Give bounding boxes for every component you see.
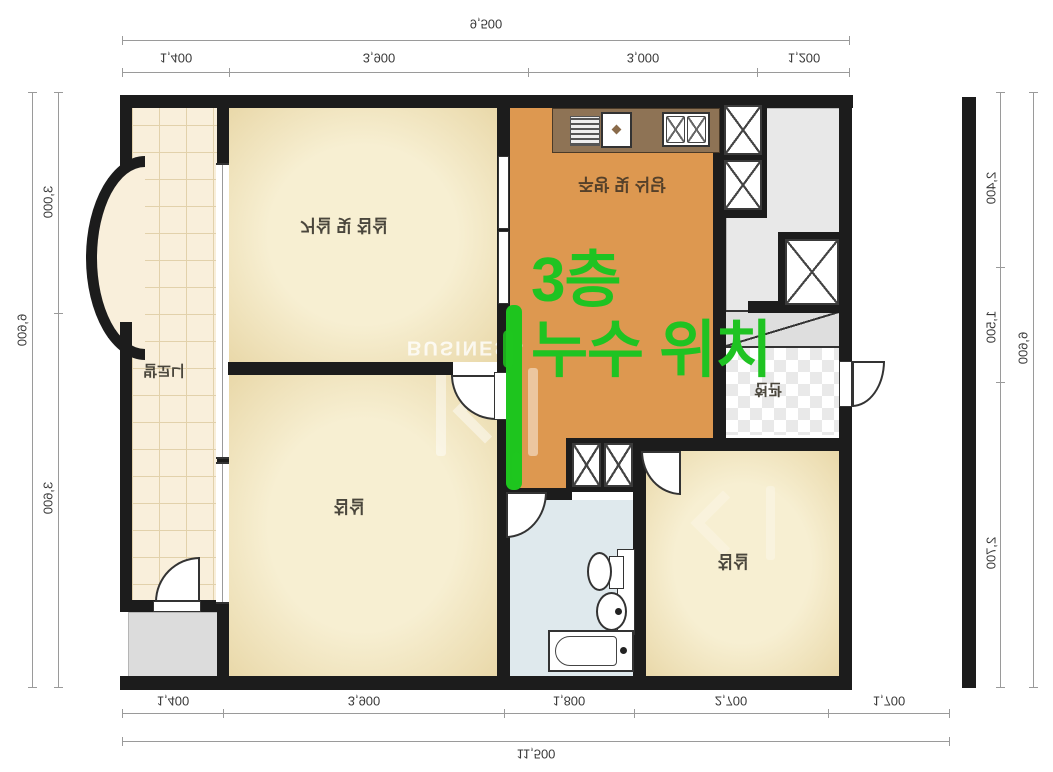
dim-right-seg: 1,500 — [984, 311, 999, 344]
dim-right-seg: 2,700 — [984, 537, 999, 570]
basin-drain-icon — [615, 608, 622, 615]
dim-line — [122, 40, 850, 41]
elevator-shaft-icon — [785, 239, 839, 305]
wall — [120, 676, 852, 690]
dim-line — [122, 713, 950, 714]
dim-top-seg: 3,900 — [363, 51, 396, 66]
balcony-window — [216, 163, 229, 459]
dim-top-total: 9,500 — [470, 17, 503, 32]
dim-tick — [996, 267, 1005, 268]
dim-line — [122, 72, 850, 73]
dim-line — [122, 741, 950, 742]
leak-annotation-floor: 3층 — [531, 248, 621, 313]
dim-right-total: 6,600 — [1016, 332, 1031, 365]
balcony-window — [216, 462, 229, 604]
dim-line — [32, 92, 33, 688]
dim-line — [1000, 92, 1001, 688]
entry-hall-floor — [128, 612, 220, 678]
dim-top-seg: 1,400 — [160, 51, 193, 66]
leak-annotation-text: 누수 위치 — [531, 318, 771, 383]
dim-tick — [229, 68, 230, 77]
dim-top-seg: 3,000 — [627, 51, 660, 66]
leak-marker-blob — [512, 452, 521, 482]
wall — [120, 322, 132, 612]
wall — [633, 438, 852, 451]
bathtub-inner — [555, 636, 617, 666]
dim-tick — [122, 68, 123, 77]
dim-bottom-seg: 2,700 — [715, 694, 748, 709]
dim-top-seg: 1,200 — [788, 51, 821, 66]
dim-tick — [54, 92, 63, 93]
door-leaf — [498, 156, 509, 229]
vent-grill-icon — [570, 116, 600, 146]
dim-left-total: 6,600 — [15, 314, 30, 347]
dim-right-seg: 2,400 — [984, 172, 999, 205]
dim-tick — [122, 709, 123, 718]
dim-tick — [828, 709, 829, 718]
washbasin-icon — [596, 592, 627, 631]
dim-tick — [1029, 92, 1038, 93]
dim-tick — [1029, 687, 1038, 688]
wall — [228, 362, 453, 375]
watermark-glyph — [766, 486, 775, 560]
dim-line — [58, 92, 59, 688]
duct-shaft-icon — [604, 443, 633, 487]
duct-shaft-icon — [724, 160, 762, 210]
bedroom-left-label: 침실 — [333, 496, 364, 521]
dim-tick — [634, 709, 635, 718]
dim-line — [1033, 92, 1034, 688]
dim-bottom-seg: 1,800 — [553, 694, 586, 709]
balcony-label: 발코니 — [143, 361, 184, 382]
duct-shaft-icon — [572, 443, 601, 487]
stove-burner-icon — [687, 116, 706, 143]
dim-tick — [849, 36, 850, 45]
dim-bottom-seg: 1,400 — [157, 694, 190, 709]
neighbor-wall-bar — [962, 97, 976, 688]
bay-window-curve — [86, 156, 145, 360]
watermark-glyph — [436, 368, 446, 456]
dim-tick — [849, 68, 850, 77]
floor-plan-image: BUSINESS — [0, 0, 1053, 772]
dim-tick — [757, 68, 758, 77]
duct-shaft-icon — [724, 105, 762, 155]
dim-tick — [996, 92, 1005, 93]
dim-tick — [949, 709, 950, 718]
dim-tick — [122, 36, 123, 45]
living-room-label: 거실 및 침실 — [300, 215, 388, 240]
leak-marker-blob — [503, 330, 513, 368]
dim-bottom-total: 11,500 — [517, 747, 556, 762]
dim-tick — [528, 68, 529, 77]
dim-bottom-seg: 3,900 — [348, 694, 381, 709]
stove-burner-icon — [666, 116, 685, 143]
toilet-icon — [587, 552, 612, 591]
dim-tick — [949, 737, 950, 746]
bedroom-left-floor — [229, 375, 497, 676]
dim-tick — [122, 737, 123, 746]
door-leaf — [153, 601, 201, 612]
dim-bottom-seg: 1,700 — [873, 694, 906, 709]
door-arc — [852, 361, 885, 407]
dim-tick — [28, 92, 37, 93]
dim-tick — [54, 313, 63, 314]
door-leaf — [839, 361, 852, 407]
dim-left-seg: 3,600 — [41, 482, 56, 515]
wall — [120, 95, 132, 170]
dim-tick — [28, 687, 37, 688]
dim-tick — [996, 687, 1005, 688]
dim-tick — [54, 687, 63, 688]
bathtub-drain-icon — [620, 647, 627, 654]
dim-tick — [996, 382, 1005, 383]
bedroom-right-label: 침실 — [717, 551, 748, 576]
door-leaf — [498, 231, 509, 304]
dim-left-seg: 3,000 — [41, 186, 56, 219]
kitchen-label: 주방 및 식당 — [578, 174, 666, 199]
dim-tick — [223, 709, 224, 718]
dim-tick — [504, 709, 505, 718]
